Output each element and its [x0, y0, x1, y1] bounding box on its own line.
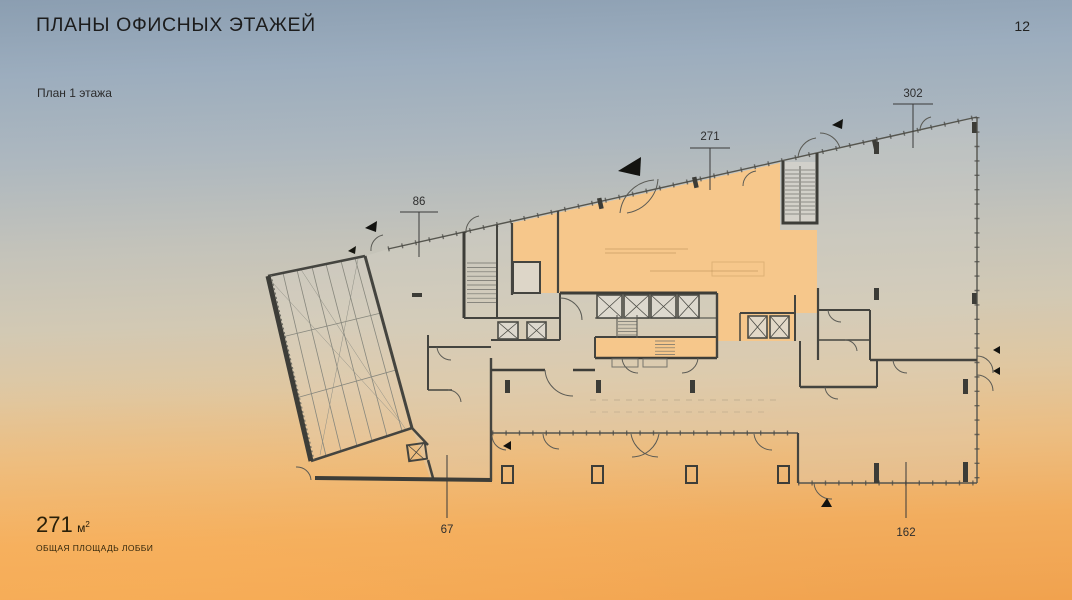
entrance-arrow-bottom-left-icon — [503, 441, 511, 450]
area-unit: м2 — [77, 521, 90, 535]
entrance-arrow-left-icon — [365, 221, 377, 232]
atrium-marker-icon — [348, 246, 356, 254]
entrance-arrow-top-icon — [832, 119, 843, 129]
area-summary: 271 м2 ОБЩАЯ ПЛОЩАДЬ ЛОББИ — [36, 512, 153, 553]
dim-label-top-left: 86 — [413, 196, 426, 208]
entrance-arrow-right2-icon — [993, 367, 1000, 375]
dim-label-top-right: 302 — [903, 88, 922, 100]
elevator-bank — [597, 295, 699, 318]
lobby-side-room — [513, 262, 540, 293]
entrance-arrow-right1-icon — [993, 346, 1000, 354]
area-value: 271 — [36, 512, 73, 537]
area-caption: ОБЩАЯ ПЛОЩАДЬ ЛОББИ — [36, 543, 153, 553]
dim-label-bottom-right: 162 — [896, 527, 915, 539]
floor-plan: 86 271 302 67 162 — [0, 0, 1072, 600]
dim-label-top-center: 271 — [700, 131, 719, 143]
entrance-arrow-main-icon — [618, 157, 641, 176]
stairs-upper-right — [783, 153, 817, 223]
presentation-slide: ПЛАНЫ ОФИСНЫХ ЭТАЖЕЙ 12 План 1 этажа — [0, 0, 1072, 600]
dim-label-bottom-left: 67 — [441, 524, 454, 536]
